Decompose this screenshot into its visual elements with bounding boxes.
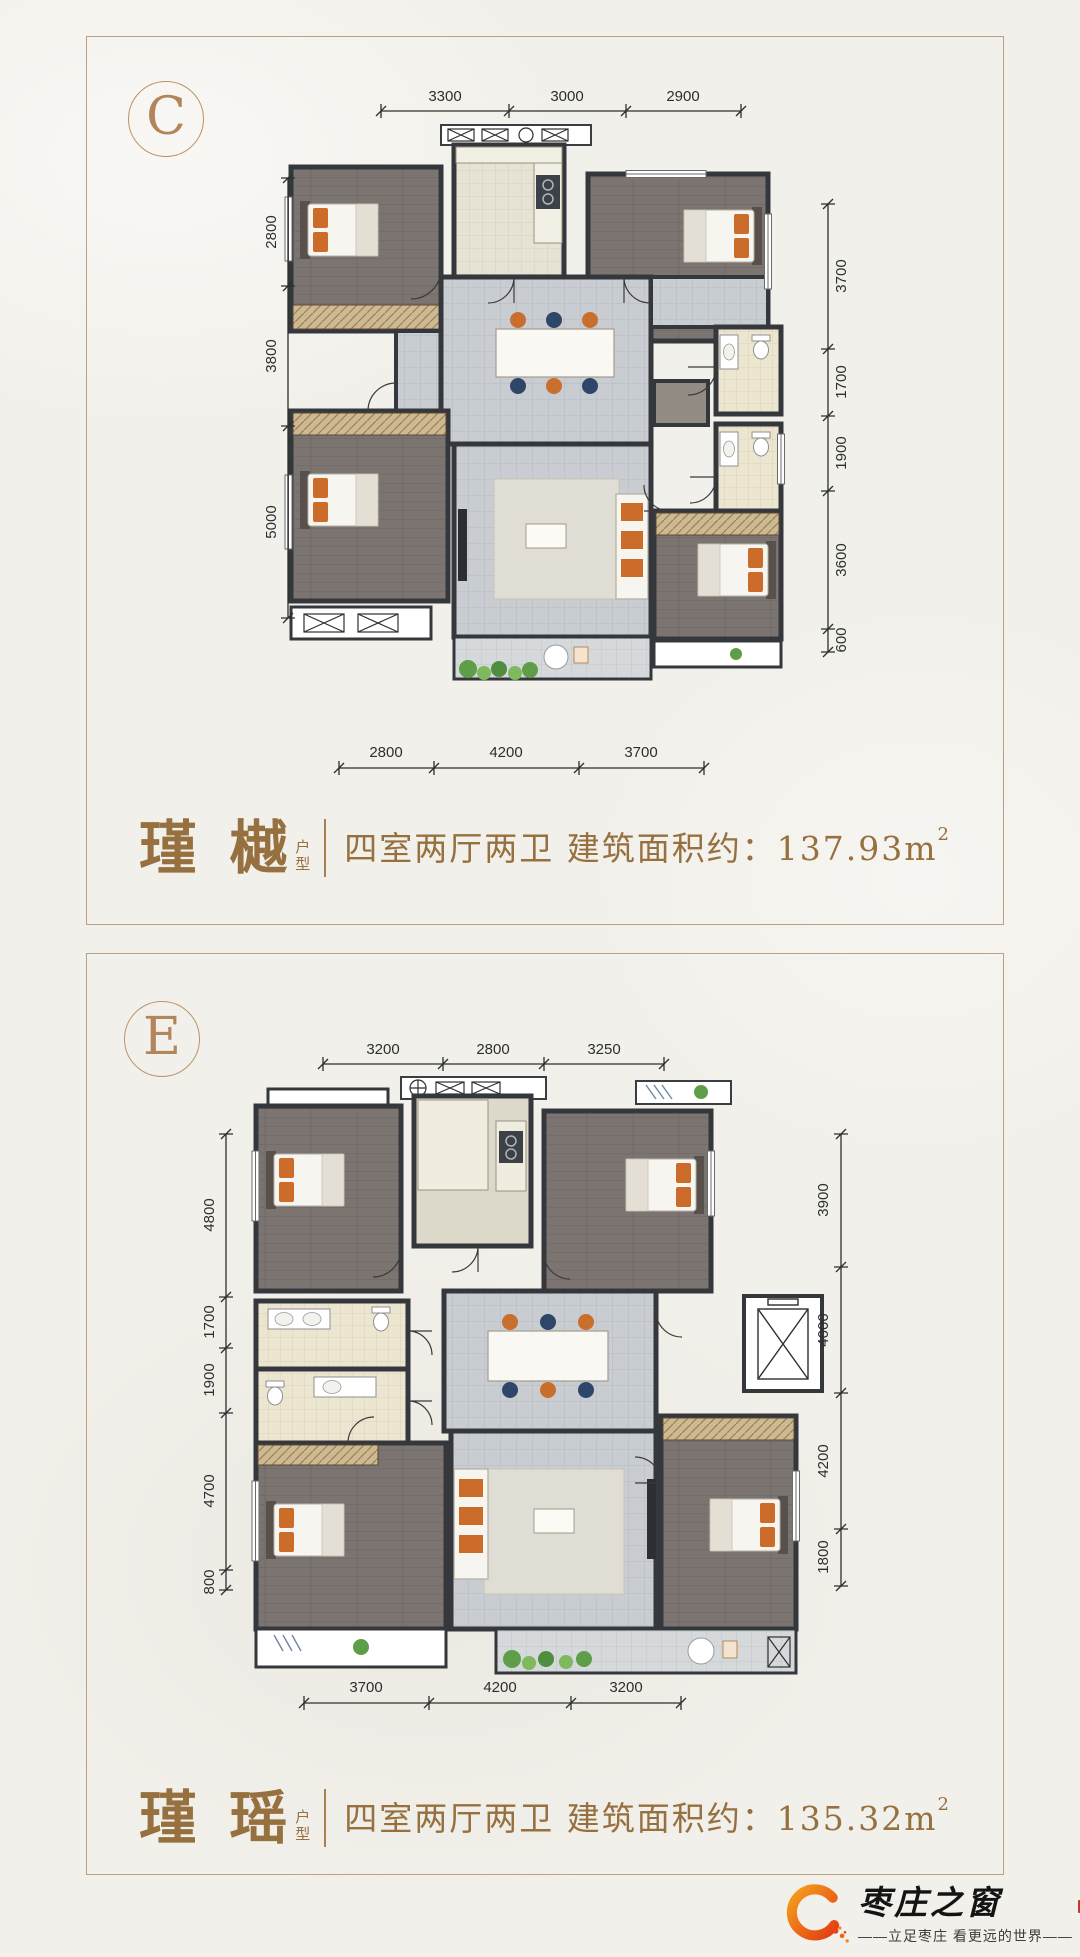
logo-text-block: 枣庄之窗 ——立足枣庄 看更远的世界—— <box>858 1884 1073 1946</box>
plan-e-suffix: 户 型 <box>295 1809 310 1848</box>
type-c-letter: C <box>146 91 186 143</box>
svg-text:3800: 3800 <box>263 339 280 372</box>
panel-e: E <box>86 953 1004 1875</box>
bed-icon <box>626 1156 704 1214</box>
type-e-letter: E <box>143 1011 181 1063</box>
bed-icon <box>266 1501 344 1559</box>
plan-c-suffix: 户 型 <box>295 839 310 878</box>
floorplan-e: 3200 2800 3250 4800 1700 1900 4700 800 3… <box>196 1001 856 1761</box>
bed-icon <box>300 201 378 259</box>
caption-e: 瑾 瑶 户 型 四室两厅两卫 建筑面积约：135.32m2 <box>87 1789 1003 1847</box>
panel-c: C <box>86 36 1004 925</box>
poster-canvas: C <box>0 0 1080 1957</box>
svg-text:1900: 1900 <box>201 1363 218 1396</box>
svg-text:1800: 1800 <box>815 1540 832 1573</box>
svg-text:600: 600 <box>833 627 850 652</box>
svg-text:4700: 4700 <box>201 1474 218 1507</box>
svg-text:3600: 3600 <box>833 543 850 576</box>
toilet-icon <box>752 432 770 456</box>
caption-c: 瑾 樾 户 型 四室两厅两卫 建筑面积约：137.93m2 <box>87 819 1003 877</box>
floorplan-c: 3300 3000 2900 2800 3800 5000 3700 1700 … <box>196 79 856 789</box>
bed-icon <box>684 207 762 265</box>
svg-text:3250: 3250 <box>587 1041 620 1058</box>
svg-text:1700: 1700 <box>833 365 850 398</box>
site-watermark: 枣庄之窗 ——立足枣庄 看更远的世界—— <box>778 1876 1080 1954</box>
bed-icon <box>300 471 378 529</box>
toilet-icon <box>372 1307 390 1331</box>
plan-e-name: 瑾 瑶 <box>139 1789 293 1847</box>
svg-text:3700: 3700 <box>624 744 657 761</box>
svg-text:4200: 4200 <box>483 1679 516 1696</box>
logo-tagline: ——立足枣庄 看更远的世界—— <box>858 1926 1073 1946</box>
svg-text:2800: 2800 <box>263 215 280 248</box>
bed-icon <box>710 1496 788 1554</box>
toilet-icon <box>266 1381 284 1405</box>
svg-text:3700: 3700 <box>349 1679 382 1696</box>
plan-c-name: 瑾 樾 <box>139 819 293 877</box>
plan-e-description: 四室两厅两卫 建筑面积约：135.32m2 <box>344 1802 951 1835</box>
type-c-badge: C <box>128 81 204 157</box>
plan-c-description: 四室两厅两卫 建筑面积约：137.93m2 <box>344 832 951 865</box>
svg-text:4200: 4200 <box>815 1444 832 1477</box>
svg-text:3900: 3900 <box>815 1183 832 1216</box>
svg-text:4800: 4800 <box>201 1198 218 1231</box>
svg-text:3200: 3200 <box>366 1041 399 1058</box>
toilet-icon <box>752 335 770 359</box>
svg-text:3200: 3200 <box>609 1679 642 1696</box>
bed-icon <box>266 1151 344 1209</box>
caption-divider <box>324 819 326 877</box>
svg-text:5000: 5000 <box>263 505 280 538</box>
svg-text:3300: 3300 <box>428 88 461 105</box>
logo-brand: 枣庄之窗 <box>858 1884 1073 1922</box>
svg-text:4200: 4200 <box>489 744 522 761</box>
svg-text:4000: 4000 <box>815 1313 832 1346</box>
svg-text:2900: 2900 <box>666 88 699 105</box>
svg-text:3700: 3700 <box>833 259 850 292</box>
svg-text:2800: 2800 <box>369 744 402 761</box>
svg-text:3000: 3000 <box>550 88 583 105</box>
svg-text:2800: 2800 <box>476 1041 509 1058</box>
svg-text:1700: 1700 <box>201 1305 218 1338</box>
bed-icon <box>698 541 776 599</box>
type-e-badge: E <box>124 1001 200 1077</box>
svg-text:1900: 1900 <box>833 436 850 469</box>
svg-text:800: 800 <box>201 1569 218 1594</box>
caption-divider <box>324 1789 326 1847</box>
logo-e-icon <box>778 1879 850 1951</box>
